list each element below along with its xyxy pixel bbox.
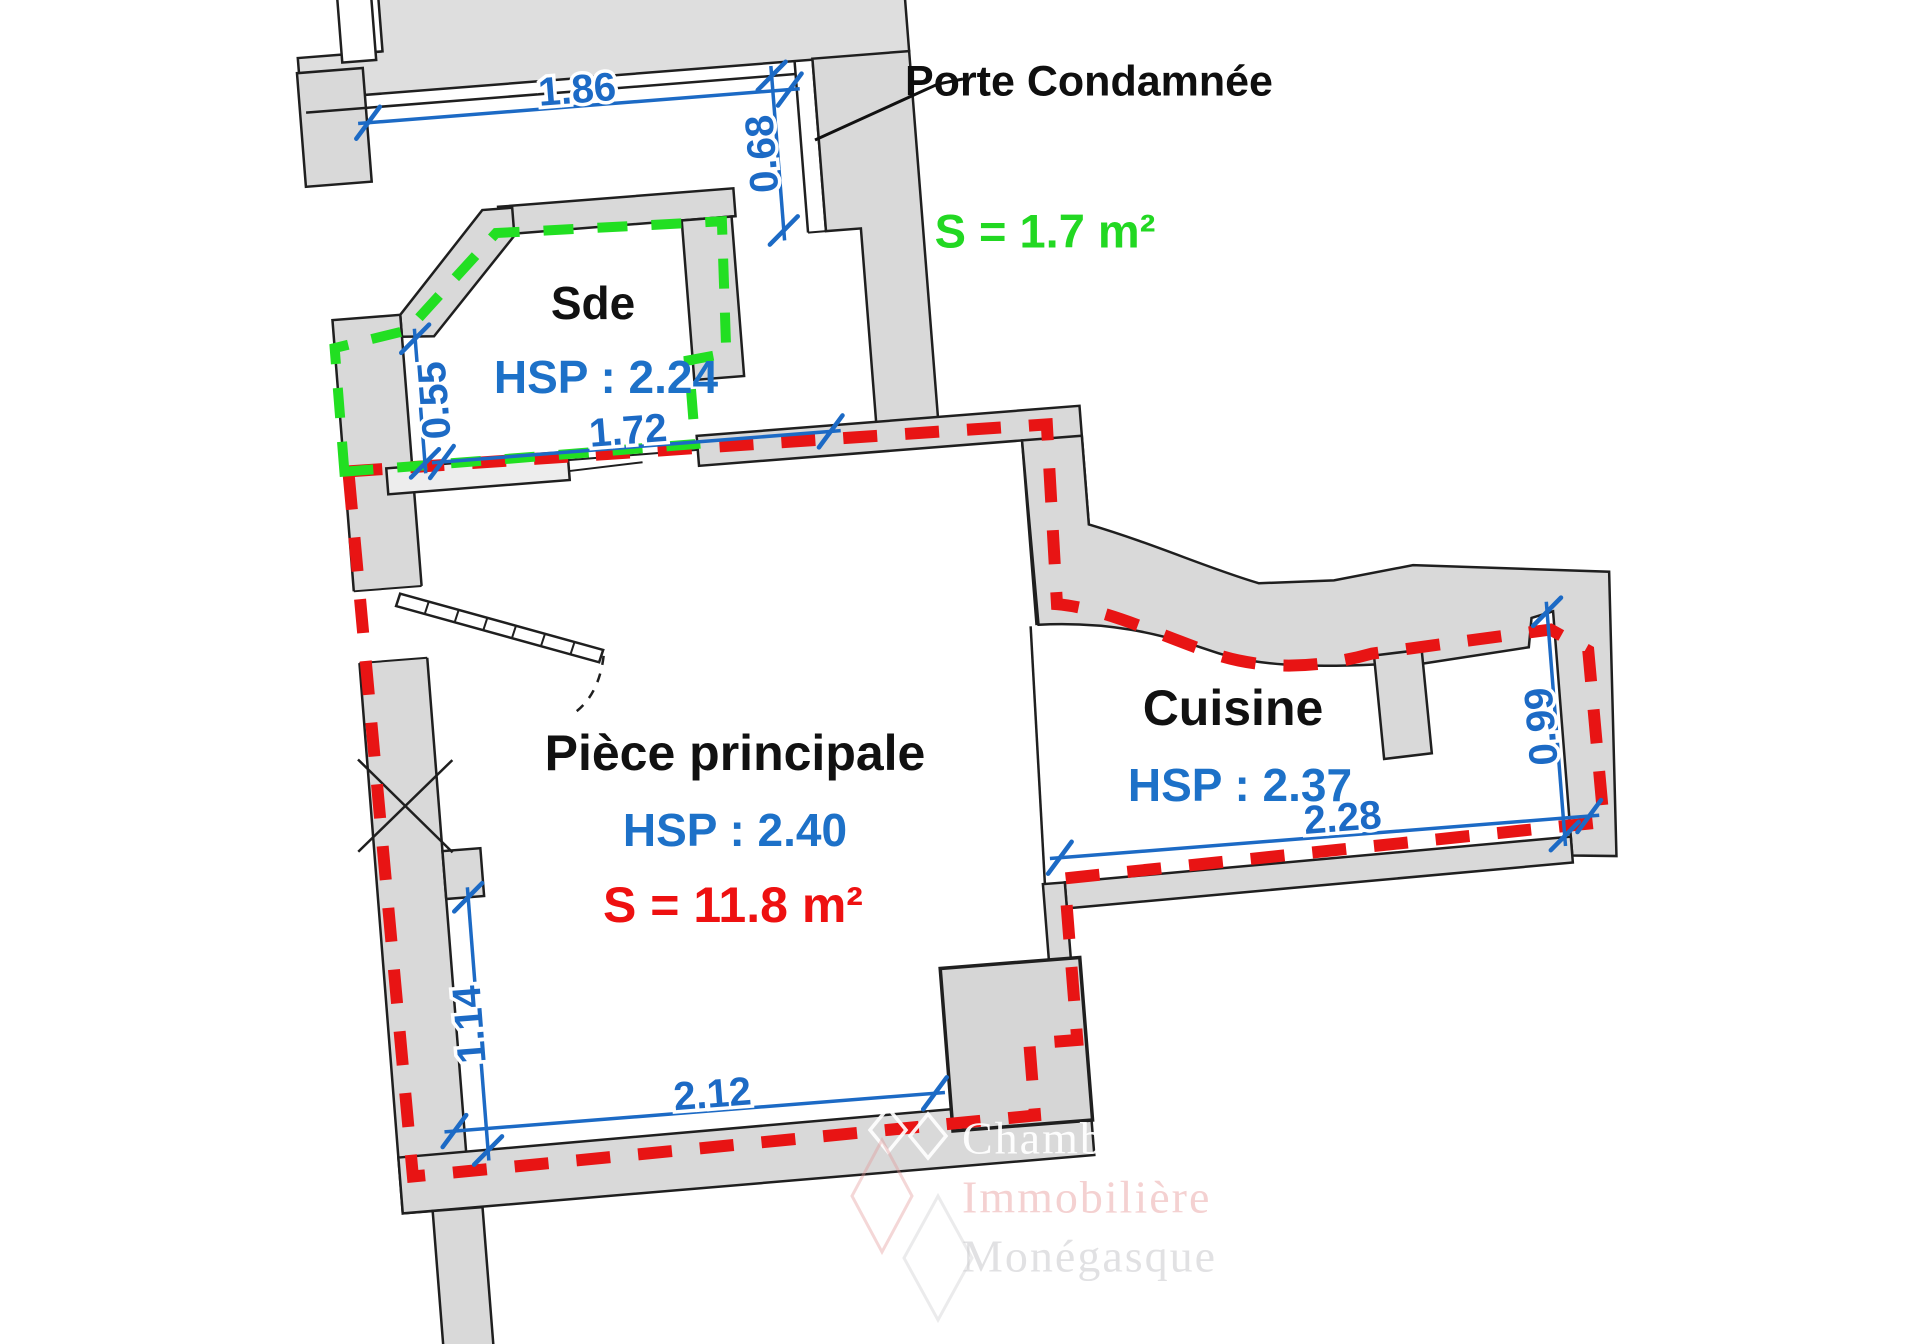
wall-top-endcap (297, 68, 372, 187)
dimension-text: 1.72 (588, 406, 669, 456)
dimension-text: 0.68 (737, 113, 787, 194)
wall-room-divider (1025, 626, 1051, 884)
dimension-text: 1.14 (445, 983, 495, 1065)
plan-labels: Porte Condamnée Sde HSP : 2.24 S = 1.7 m… (494, 57, 1352, 933)
dimension-text: 1.86 (537, 65, 618, 115)
room-hsp-sde: HSP : 2.24 (494, 351, 719, 403)
room-label-cuisine: Cuisine (1143, 680, 1324, 736)
watermark-line-3: Monégasque (962, 1231, 1217, 1282)
room-label-sde: Sde (551, 277, 635, 329)
pocket-door-leaf (569, 462, 643, 471)
wall-cuisine-pier (1374, 650, 1432, 760)
dimension-text: 0.55 (410, 360, 460, 441)
dimension-text: 0.99 (1517, 686, 1567, 767)
entry-door-swing-arc (568, 656, 608, 715)
wall-bottom-stub (433, 1207, 497, 1344)
wall-left-pilaster (442, 848, 484, 899)
condemned-door-label: Porte Condamnée (905, 57, 1273, 105)
condemned-door-jamb-left (794, 60, 808, 232)
floor-plan: 1.86 0.68 1.72 0.55 1.14 2.12 (0, 0, 1920, 1344)
wall-right-column (812, 51, 938, 428)
room-hsp-cuisine: HSP : 2.37 (1128, 759, 1352, 811)
watermark-line-2: Immobilière (962, 1172, 1211, 1223)
condemned-door-sill (808, 231, 826, 232)
room-label-piece-principale: Pièce principale (545, 725, 926, 781)
room-hsp-piece-principale: HSP : 2.40 (623, 804, 847, 856)
watermark-line-1: Chambre (962, 1113, 1145, 1164)
wall-top-stub (336, 0, 376, 63)
dimension-text: 2.12 (672, 1069, 753, 1119)
room-area-sde: S = 1.7 m² (935, 204, 1156, 257)
floor-plan-page: 1.86 0.68 1.72 0.55 1.14 2.12 (0, 0, 1920, 1344)
room-area-piece-principale: S = 11.8 m² (603, 877, 863, 933)
